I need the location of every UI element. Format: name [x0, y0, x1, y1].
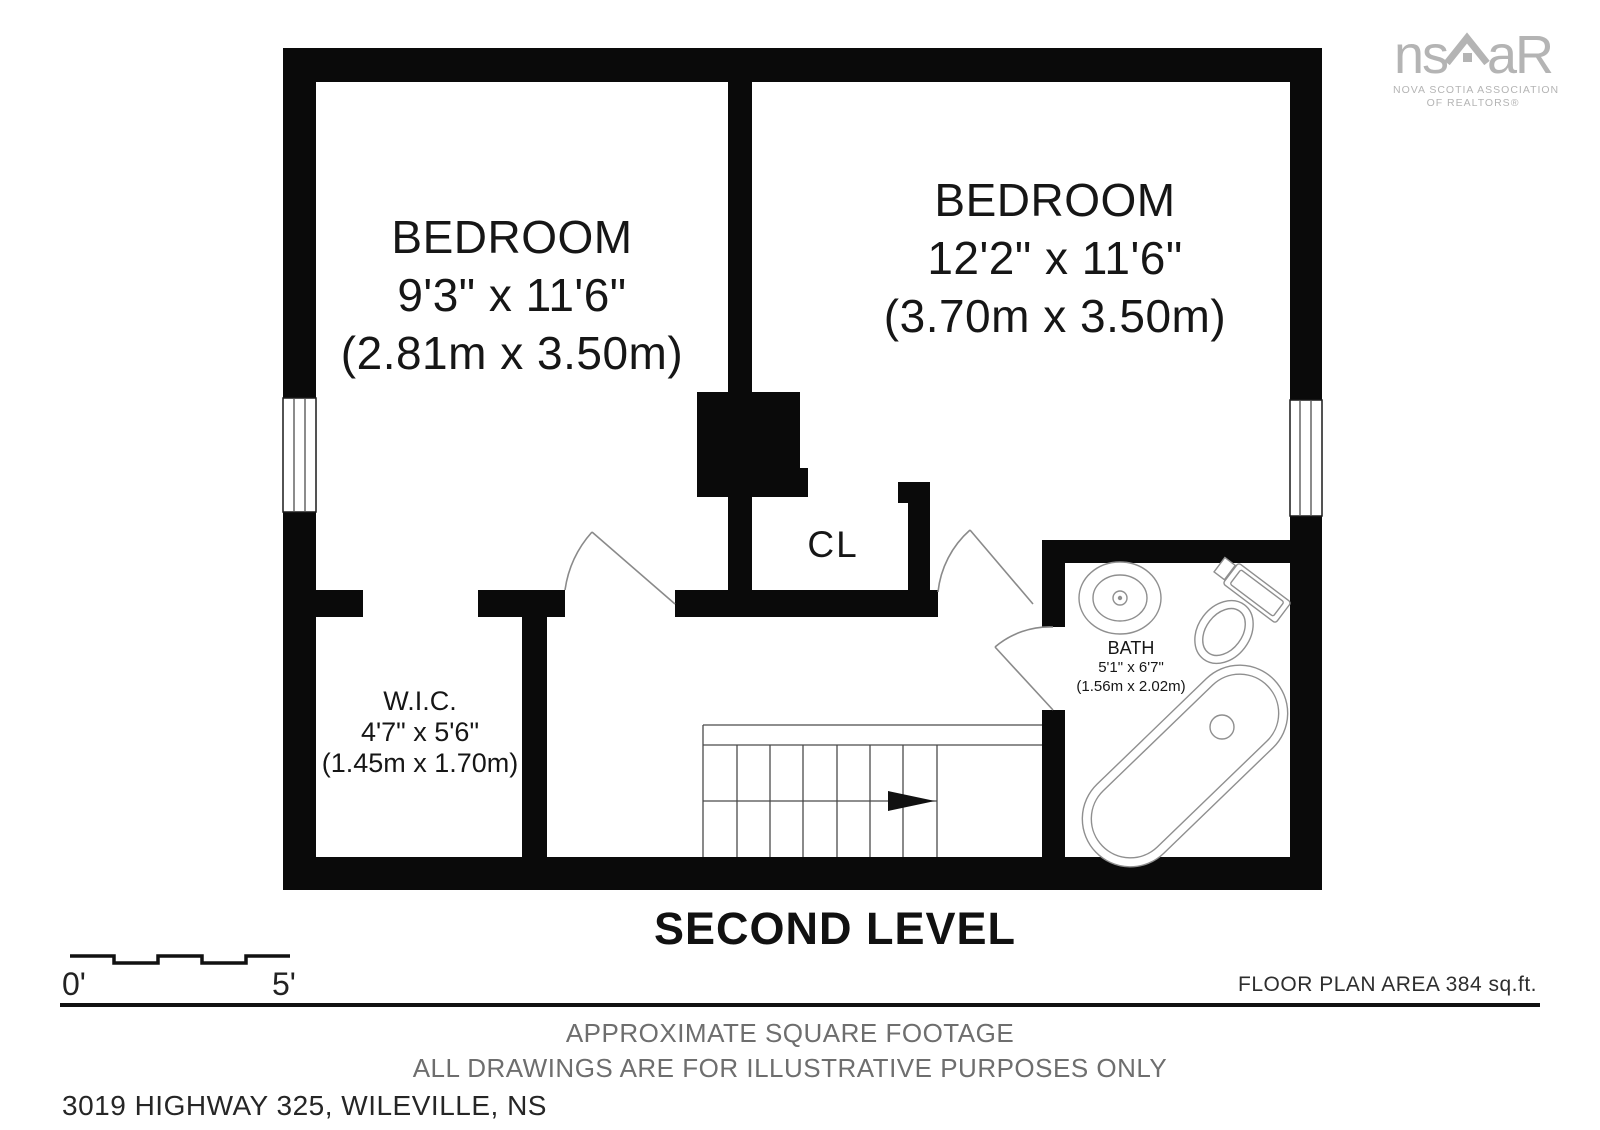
bath-label: BATH 5'1" x 6'7" (1.56m x 2.02m): [1076, 639, 1185, 696]
bedroom1-name: BEDROOM: [341, 208, 683, 266]
chimney-step: [780, 468, 808, 497]
toilet-icon: [1183, 554, 1291, 674]
logo-text-right: aR: [1487, 28, 1552, 82]
bedroom2-label: BEDROOM 12'2" x 11'6" (3.70m x 3.50m): [884, 171, 1226, 345]
floor-plan-area-note: FLOOR PLAN AREA 384 sq.ft.: [1238, 973, 1537, 997]
logo-caption-line2: OF REALTORS®: [1393, 97, 1553, 109]
window-right: [1290, 400, 1322, 516]
wic-top-wall: [478, 590, 565, 617]
bedroom2-dims-metric: (3.70m x 3.50m): [884, 287, 1226, 345]
sink-icon: [1079, 562, 1161, 634]
closet-label: CL: [807, 524, 858, 566]
bedroom2-name: BEDROOM: [884, 171, 1226, 229]
closet-right-wall-cap: [898, 482, 930, 503]
door-bedroom2: [938, 530, 1033, 604]
door-bedroom1: [565, 532, 675, 604]
wall-left-upper: [283, 48, 316, 398]
bedroom2-dims-imperial: 12'2" x 11'6": [884, 229, 1226, 287]
closet-name: CL: [807, 524, 858, 566]
windows: [283, 398, 1322, 516]
wic-name: W.I.C.: [322, 686, 519, 717]
scale-bar: [70, 956, 290, 963]
bath-fixtures: [1062, 554, 1307, 886]
window-left: [283, 398, 316, 512]
nsar-logo: ns aR NOVA SCOTIA ASSOCIATION OF REALTOR…: [1393, 20, 1553, 109]
hall-wall-center: [675, 590, 938, 617]
logo-text-left: ns: [1394, 28, 1447, 82]
wall-right-upper: [1290, 48, 1322, 400]
wall-bedroom-divider: [728, 82, 752, 392]
bedroom1-dims-imperial: 9'3" x 11'6": [341, 266, 683, 324]
bath-name: BATH: [1076, 639, 1185, 658]
scale-end-label: 5': [272, 966, 296, 1003]
scale-start-label: 0': [62, 966, 86, 1003]
wic-dims-metric: (1.45m x 1.70m): [322, 748, 519, 779]
tub-drain: [1210, 715, 1234, 739]
wic-right-wall: [522, 617, 547, 857]
nsar-logo-mark: ns aR: [1393, 20, 1553, 82]
bedroom1-label: BEDROOM 9'3" x 11'6" (2.81m x 3.50m): [341, 208, 683, 382]
wall-right-lower: [1290, 516, 1322, 890]
staircase: [703, 725, 1042, 857]
hall-wall-left-stub: [283, 590, 363, 617]
level-title: SECOND LEVEL: [654, 903, 1016, 955]
footer-divider: [60, 1003, 1540, 1007]
wall-top: [283, 48, 1322, 82]
wall-left-lower: [283, 512, 316, 890]
logo-caption-line1: NOVA SCOTIA ASSOCIATION: [1393, 84, 1553, 96]
disclaimer-line1: APPROXIMATE SQUARE FOOTAGE: [566, 1018, 1014, 1049]
bath-dims-imperial: 5'1" x 6'7": [1076, 658, 1185, 677]
bath-top-wall: [1042, 540, 1290, 563]
bath-left-wall-lower: [1042, 710, 1065, 857]
property-address: 3019 HIGHWAY 325, WILEVILLE, NS: [62, 1090, 547, 1122]
bedroom1-dims-metric: (2.81m x 3.50m): [341, 324, 683, 382]
wic-label: W.I.C. 4'7" x 5'6" (1.45m x 1.70m): [322, 686, 519, 779]
floor-plan-page: ns aR NOVA SCOTIA ASSOCIATION OF REALTOR…: [0, 0, 1600, 1130]
house-roof-icon: [1444, 27, 1490, 69]
wic-dims-imperial: 4'7" x 5'6": [322, 717, 519, 748]
bath-left-wall-upper: [1042, 540, 1065, 627]
disclaimer-line2: ALL DRAWINGS ARE FOR ILLUSTRATIVE PURPOS…: [413, 1053, 1168, 1084]
wall-bottom: [283, 857, 1322, 890]
door-bath: [995, 627, 1053, 710]
bath-dims-metric: (1.56m x 2.02m): [1076, 677, 1185, 696]
stair-direction-arrow: [888, 791, 935, 811]
floor-plan-drawing: [0, 0, 1600, 1130]
